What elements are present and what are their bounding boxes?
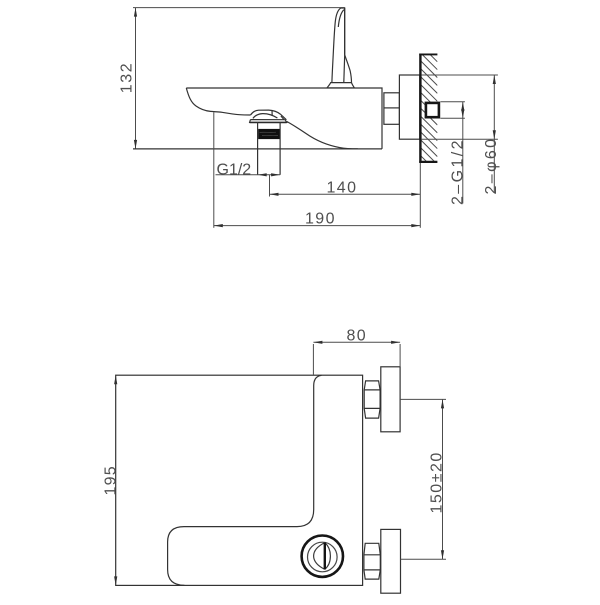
svg-text:150±20: 150±20: [429, 451, 446, 513]
svg-text:2–G1/2: 2–G1/2: [450, 138, 467, 205]
svg-text:132: 132: [119, 62, 136, 94]
svg-text:G1/2: G1/2: [217, 161, 252, 178]
svg-text:195: 195: [102, 465, 119, 495]
svg-text:2–φ60: 2–φ60: [483, 137, 500, 195]
svg-text:190: 190: [305, 211, 336, 228]
svg-text:140: 140: [327, 180, 358, 197]
